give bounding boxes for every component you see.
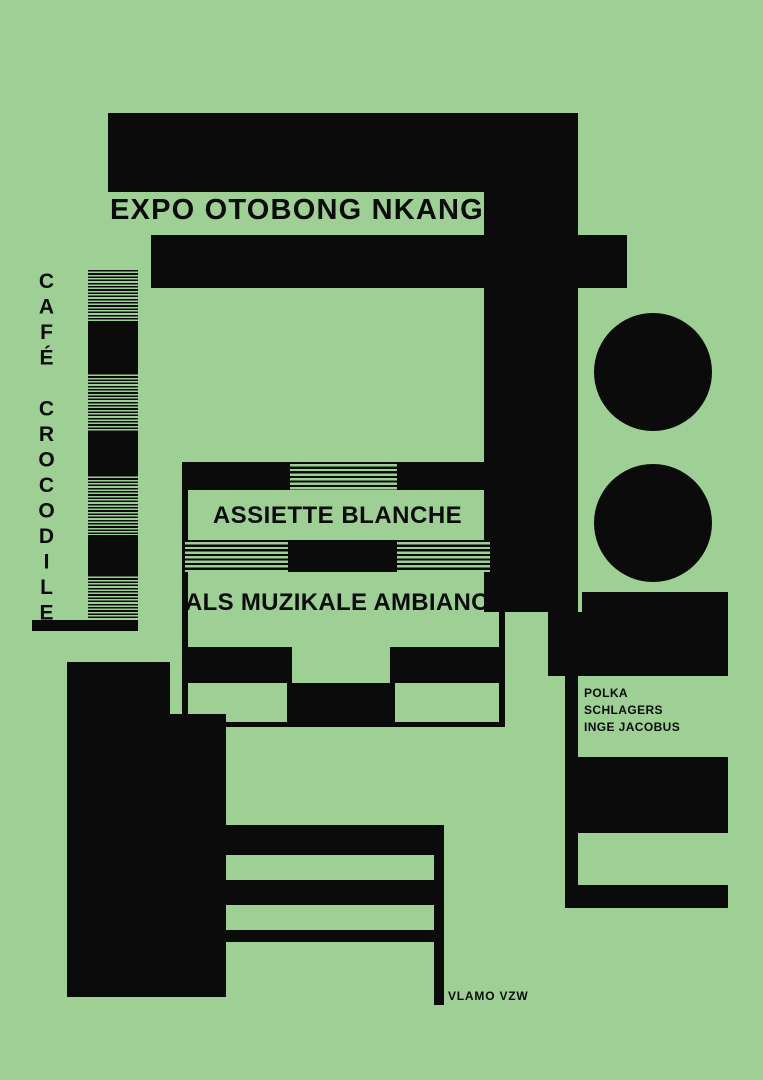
right-block-middle	[565, 757, 728, 833]
band-striped-cell	[185, 540, 288, 572]
left-baseline-bar	[32, 620, 138, 631]
checker-cell-black	[390, 647, 500, 683]
program-line-2: SCHLAGERS	[584, 702, 680, 719]
band-striped-cell	[290, 462, 397, 490]
right-block-upper	[548, 612, 728, 676]
horizontal-bar-1	[226, 825, 444, 855]
solid-segment	[88, 432, 138, 475]
center-mid-band	[185, 540, 490, 572]
expo-title: EXPO OTOBONG NKANGA	[110, 196, 506, 224]
solid-segment	[88, 535, 138, 575]
right-block-upper-lip	[582, 592, 728, 612]
vlamo-credit: VLAMO VZW	[448, 989, 529, 1003]
band-black-cell	[288, 540, 397, 572]
right-vertical-column	[484, 113, 578, 612]
checker-cell-black	[287, 683, 395, 722]
horizontal-bar-3	[226, 930, 444, 942]
program-list: POLKA SCHLAGERS INGE JACOBUS	[584, 685, 680, 736]
solid-segment	[88, 322, 138, 373]
assiette-blanche-label: ASSIETTE BLANCHE	[185, 503, 490, 529]
horizontal-bar-2	[226, 880, 444, 905]
band-black-cell	[397, 462, 490, 490]
stripe-segment	[88, 270, 138, 322]
band-black-cell	[185, 462, 290, 490]
circle-top	[594, 313, 712, 431]
left-stripe-column	[88, 270, 138, 627]
right-block-lower-bar	[565, 885, 728, 908]
stripe-segment	[88, 475, 138, 535]
muzikale-ambiance-label: ALS MUZIKALE AMBIANCE	[185, 590, 490, 616]
band-striped-cell	[397, 540, 490, 572]
poster-canvas: EXPO OTOBONG NKANGA POLKA SCHLAGERS INGE…	[0, 0, 763, 1080]
stripe-segment	[88, 373, 138, 432]
program-line-3: INGE JACOBUS	[584, 719, 680, 736]
bottom-left-block-upper	[67, 662, 170, 714]
vertical-rule	[434, 825, 444, 1005]
checker-cell-black	[185, 647, 292, 683]
program-line-1: POLKA	[584, 685, 680, 702]
center-top-band	[185, 462, 490, 490]
circle-bottom	[594, 464, 712, 582]
cafe-crocodile-vertical-title: CAFÉ CROCODILE	[33, 270, 59, 627]
center-block-bottom-line	[180, 722, 505, 727]
bottom-left-block-lower	[67, 714, 226, 997]
